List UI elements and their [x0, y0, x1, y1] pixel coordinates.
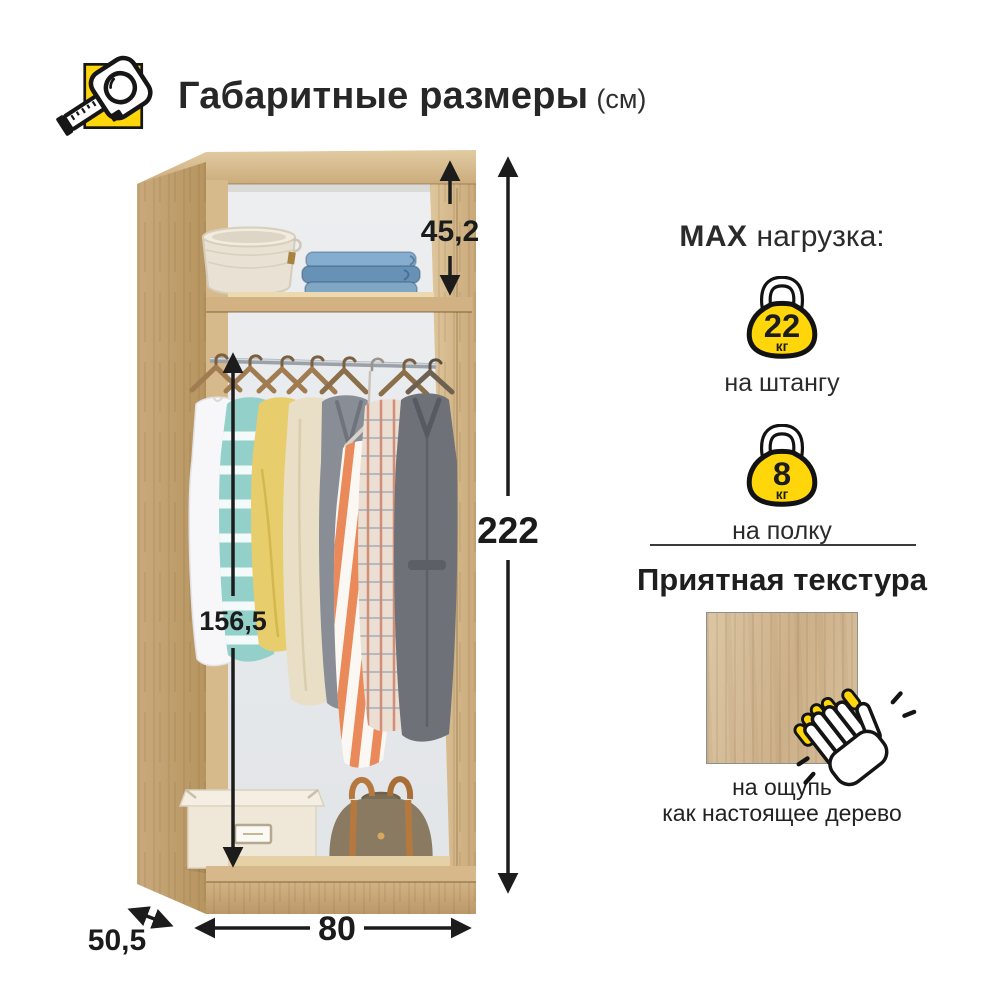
kettlebell-icon: 8 кг: [741, 424, 823, 508]
dimension-label: 45,2: [421, 215, 479, 248]
dimension-label: 222: [477, 510, 539, 551]
load-label-rod: на штангу: [632, 369, 932, 398]
dimension-depth: 50,5: [88, 910, 170, 957]
product-infographic: Габаритные размеры(см): [0, 0, 1000, 1000]
max-load-title-bold: MAX: [679, 220, 747, 253]
dimension-label: 50,5: [88, 924, 146, 957]
max-load-rod: 22 кг на штангу: [632, 276, 932, 398]
texture-caption-line2: как настоящее дерево: [632, 800, 932, 826]
dimension-total-height: 222: [477, 160, 539, 890]
max-load-shelf: 8 кг на полку: [632, 424, 932, 546]
section-divider: [650, 544, 916, 546]
dimension-label: 156,5: [199, 606, 267, 636]
wardrobe-shelf: [206, 292, 472, 312]
folded-jeans: [302, 252, 420, 297]
clapping-hand-icon: [792, 686, 918, 794]
grey-coat: [394, 360, 458, 742]
dimension-label: 80: [318, 910, 356, 948]
load-label-shelf: на полку: [632, 517, 932, 546]
max-load-title-rest: нагрузка:: [757, 220, 885, 253]
load-unit: кг: [776, 339, 789, 354]
dimension-width: 80: [198, 910, 468, 948]
coat-belt: [408, 560, 446, 570]
wicker-basket: [203, 228, 301, 295]
load-unit: кг: [776, 487, 789, 502]
max-load-section: MAXнагрузка: 22 кг на штангу 8 кг на пол…: [632, 220, 932, 546]
texture-section: Приятная текстура: [632, 562, 932, 827]
kettlebell-icon: 22 кг: [741, 276, 823, 360]
max-load-title: MAXнагрузка:: [632, 220, 932, 254]
bag-emblem: [378, 833, 385, 840]
texture-title: Приятная текстура: [632, 562, 932, 598]
wardrobe-bottom-panel: [206, 856, 476, 914]
texture-swatch-wrap: [706, 612, 858, 764]
